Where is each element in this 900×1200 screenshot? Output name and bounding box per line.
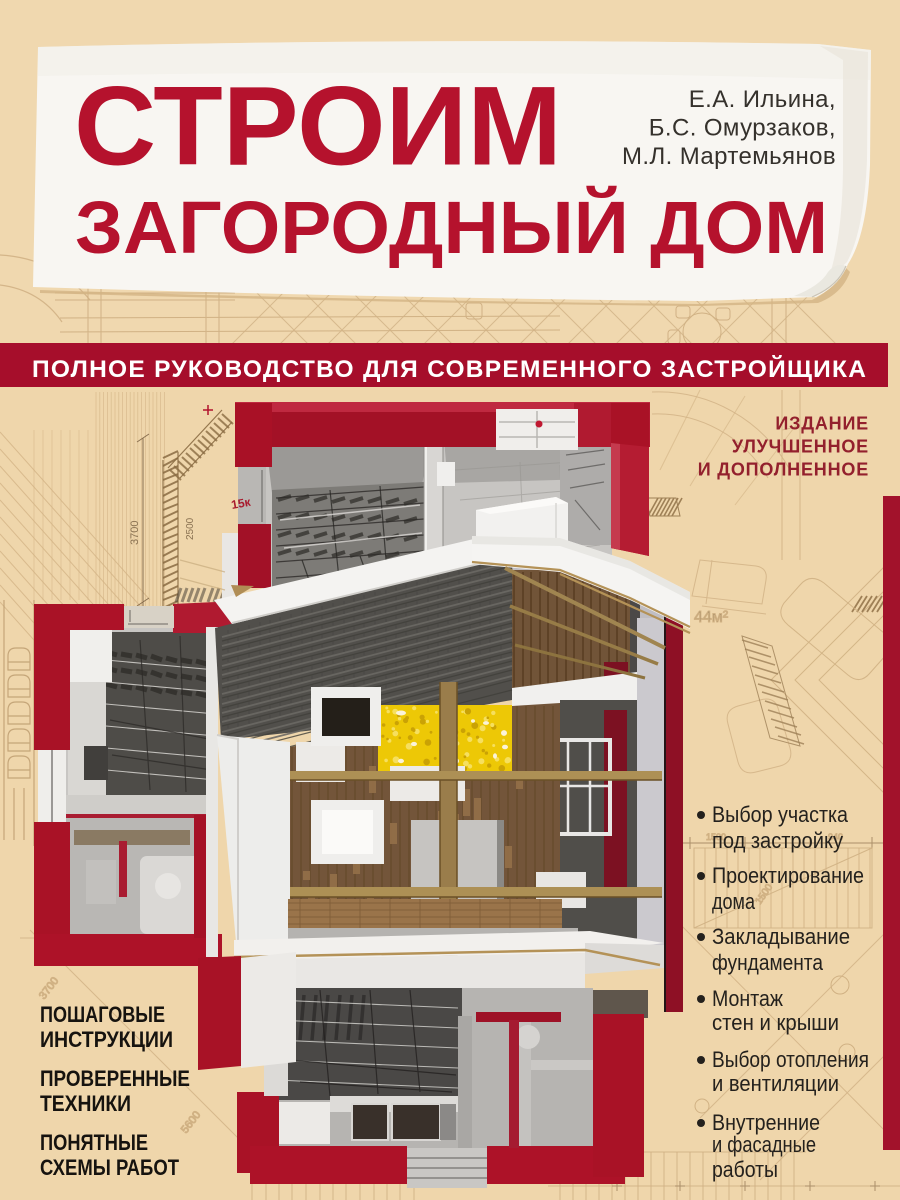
svg-text:ПОШАГОВЫЕ: ПОШАГОВЫЕ	[40, 1002, 165, 1027]
svg-text:ПОНЯТНЫЕ: ПОНЯТНЫЕ	[40, 1130, 148, 1155]
svg-text:ИНСТРУКЦИИ: ИНСТРУКЦИИ	[40, 1027, 173, 1052]
svg-text:Проектирование: Проектирование	[712, 863, 864, 888]
svg-text:стен и крыши: стен и крыши	[712, 1010, 839, 1035]
svg-text:работы: работы	[712, 1157, 778, 1182]
svg-text:ИЗДАНИЕ: ИЗДАНИЕ	[775, 414, 869, 434]
svg-text:СХЕМЫ РАБОТ: СХЕМЫ РАБОТ	[40, 1155, 179, 1180]
svg-text:дома: дома	[712, 889, 756, 914]
svg-text:под застройку: под застройку	[712, 828, 843, 853]
svg-text:3700: 3700	[129, 521, 141, 545]
svg-text:Б.С. Омурзаков,: Б.С. Омурзаков,	[649, 115, 836, 142]
svg-text:ПОЛНОЕ РУКОВОДСТВО ДЛЯ СОВРЕМЕ: ПОЛНОЕ РУКОВОДСТВО ДЛЯ СОВРЕМЕННОГО ЗАСТ…	[32, 355, 866, 383]
svg-text:2500: 2500	[185, 517, 196, 540]
svg-text:ЗАГОРОДНЫЙ ДОМ: ЗАГОРОДНЫЙ ДОМ	[75, 185, 828, 269]
svg-text:М.Л. Мартемьянов: М.Л. Мартемьянов	[622, 143, 836, 170]
svg-text:Монтаж: Монтаж	[712, 986, 783, 1011]
svg-text:Выбор отопления: Выбор отопления	[712, 1047, 869, 1072]
svg-text:44м²: 44м²	[694, 609, 729, 626]
svg-text:и вентиляции: и вентиляции	[712, 1071, 839, 1096]
svg-text:фундамента: фундамента	[712, 950, 824, 975]
svg-text:и фасадные: и фасадные	[712, 1132, 816, 1157]
svg-text:ТЕХНИКИ: ТЕХНИКИ	[40, 1091, 131, 1116]
svg-text:ПРОВЕРЕННЫЕ: ПРОВЕРЕННЫЕ	[40, 1066, 190, 1091]
svg-text:Выбор участка: Выбор участка	[712, 802, 849, 827]
svg-text:Е.А. Ильина,: Е.А. Ильина,	[689, 86, 836, 113]
svg-text:СТРОИМ: СТРОИМ	[74, 64, 562, 189]
svg-text:УЛУЧШЕННОЕ: УЛУЧШЕННОЕ	[732, 437, 869, 457]
svg-text:Закладывание: Закладывание	[712, 924, 850, 949]
svg-text:И ДОПОЛНЕННОЕ: И ДОПОЛНЕННОЕ	[698, 460, 869, 480]
